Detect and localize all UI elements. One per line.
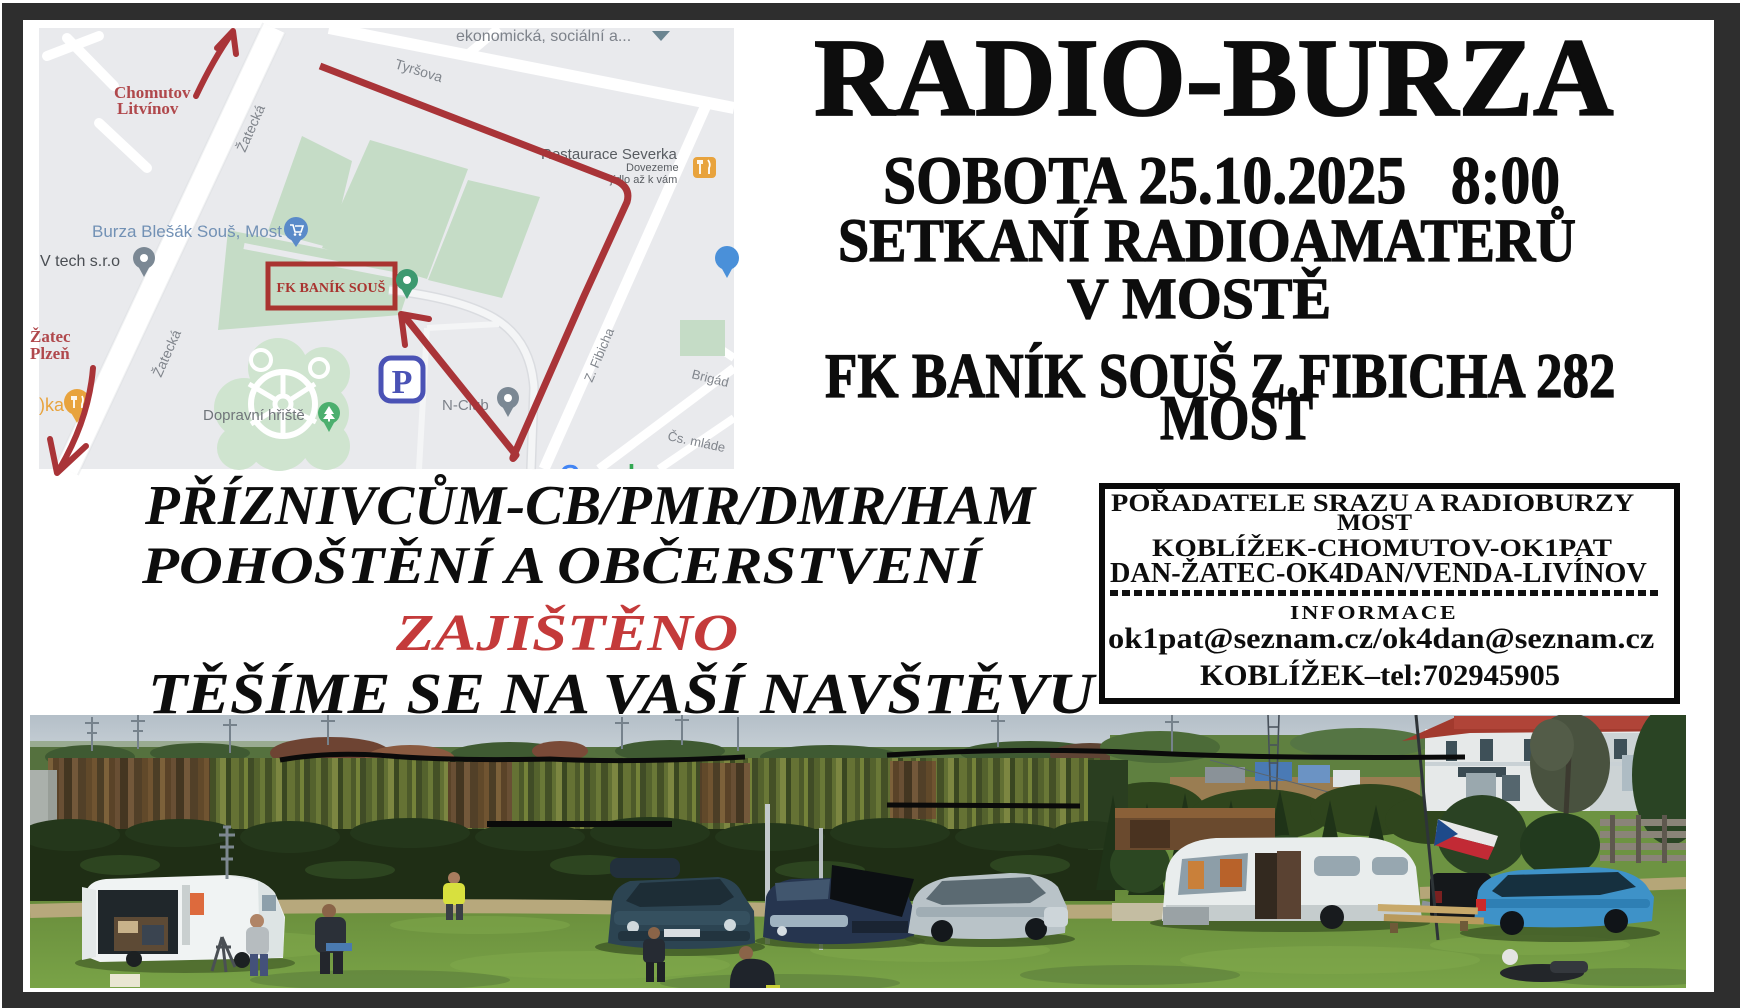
svg-text:P: P (392, 364, 413, 401)
svg-text:Dovezeme: Dovezeme (626, 162, 679, 174)
svg-text:V tech s.r.o: V tech s.r.o (40, 253, 120, 270)
svg-text:Litvínov: Litvínov (117, 99, 179, 118)
svg-text:Plzeň: Plzeň (30, 344, 70, 363)
svg-text:Burza Blešák Souš, Most: Burza Blešák Souš, Most (92, 222, 282, 241)
svg-text:)ka: )ka (39, 395, 65, 415)
svg-text:Dopravní hřiště: Dopravní hřiště (203, 407, 305, 424)
svg-text:FK BANÍK SOUŠ: FK BANÍK SOUŠ (277, 279, 386, 296)
svg-text:ekonomická, sociální a...: ekonomická, sociální a... (456, 28, 631, 45)
